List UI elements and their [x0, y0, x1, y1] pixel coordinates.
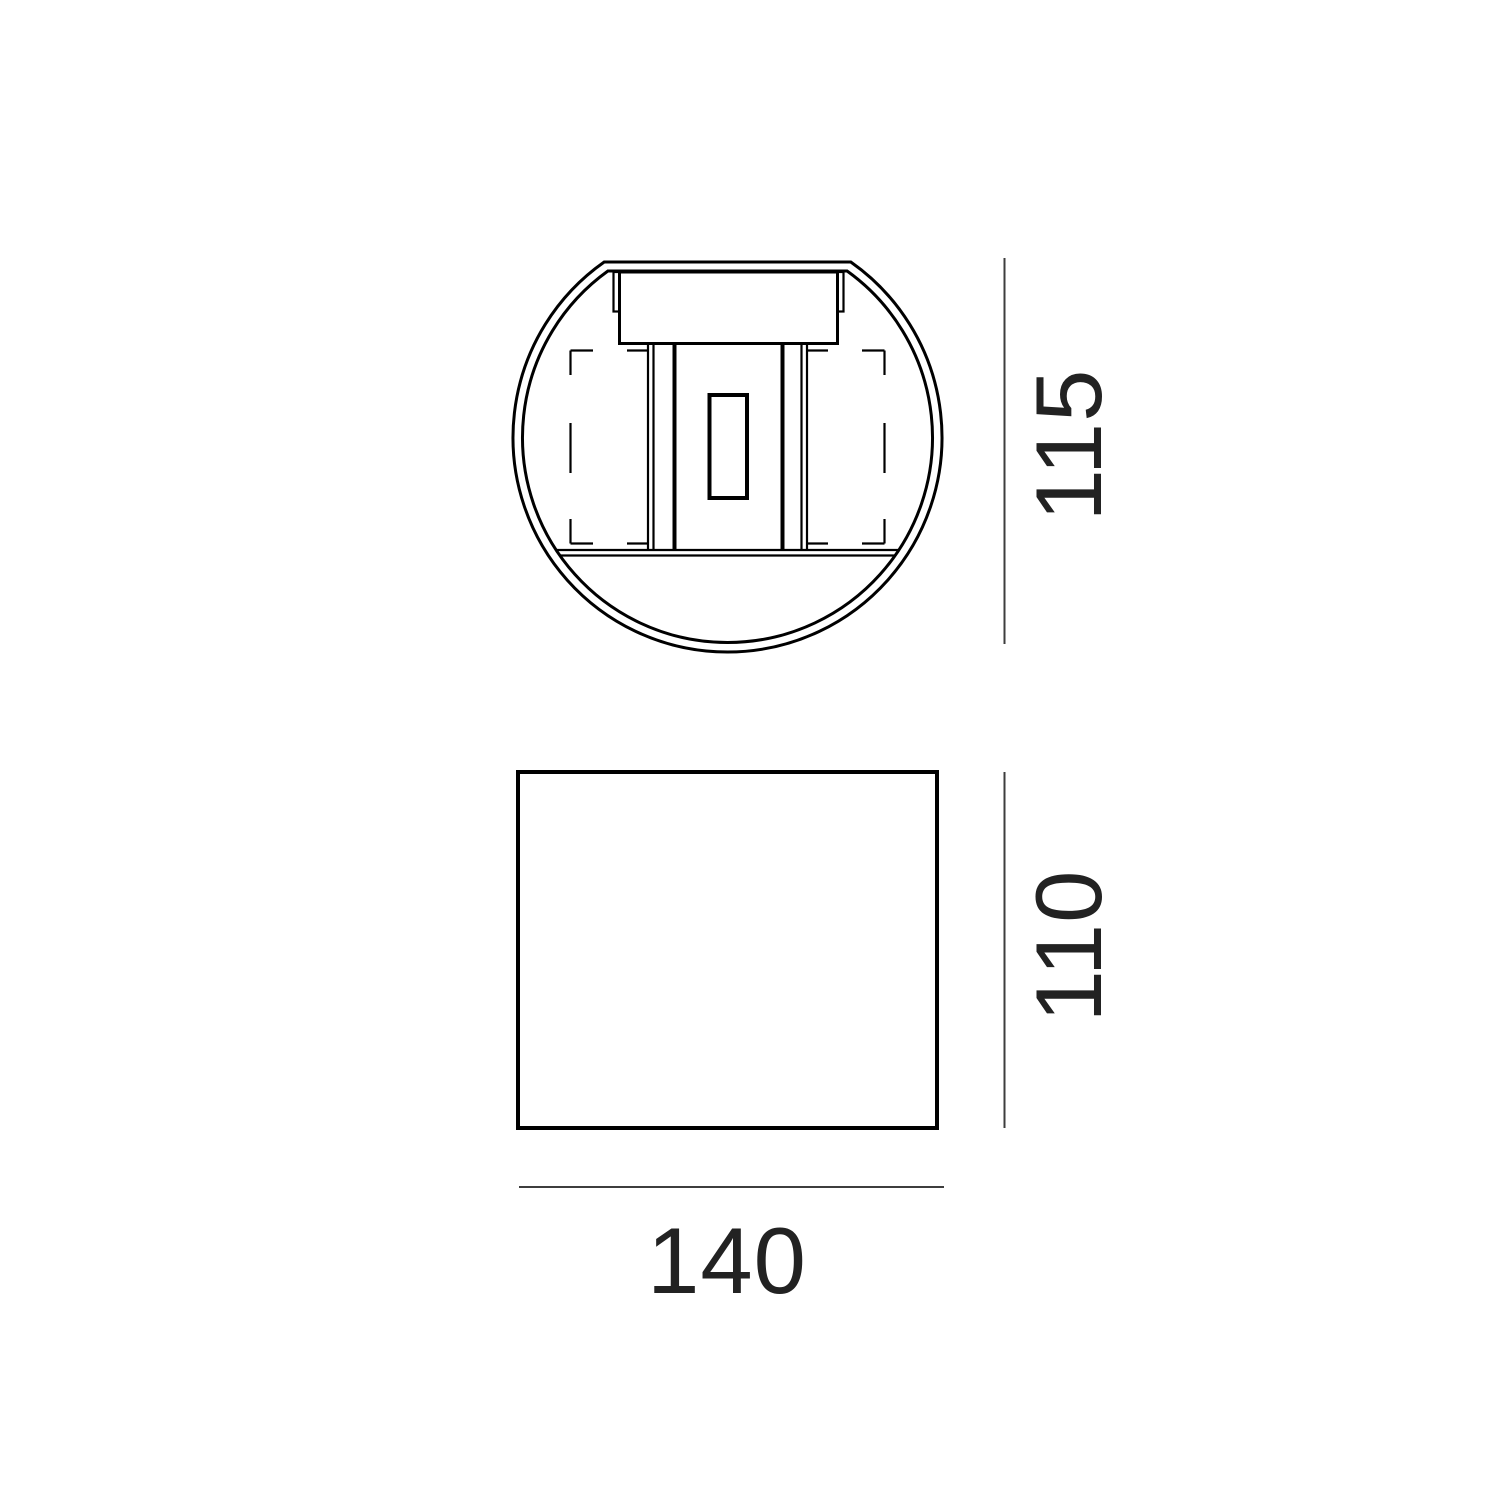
dashed-recess-left	[571, 351, 648, 544]
dimension-annotations: 115 110 140	[519, 258, 1121, 1313]
technical-drawing: 115 110 140	[0, 0, 1500, 1500]
mounting-plate	[620, 272, 838, 344]
dimension-label-front-height: 110	[1016, 870, 1121, 1023]
front-view-drawing	[518, 772, 937, 1128]
dimension-drawing-canvas: 115 110 140	[0, 0, 1500, 1500]
top-view-drawing	[513, 262, 942, 652]
dimension-label-front-width: 140	[647, 1208, 807, 1313]
dimension-label-top-view-height: 115	[1016, 369, 1121, 522]
cable-slot	[710, 395, 748, 498]
dashed-recess-right	[808, 351, 885, 544]
front-view-outline	[518, 772, 937, 1128]
